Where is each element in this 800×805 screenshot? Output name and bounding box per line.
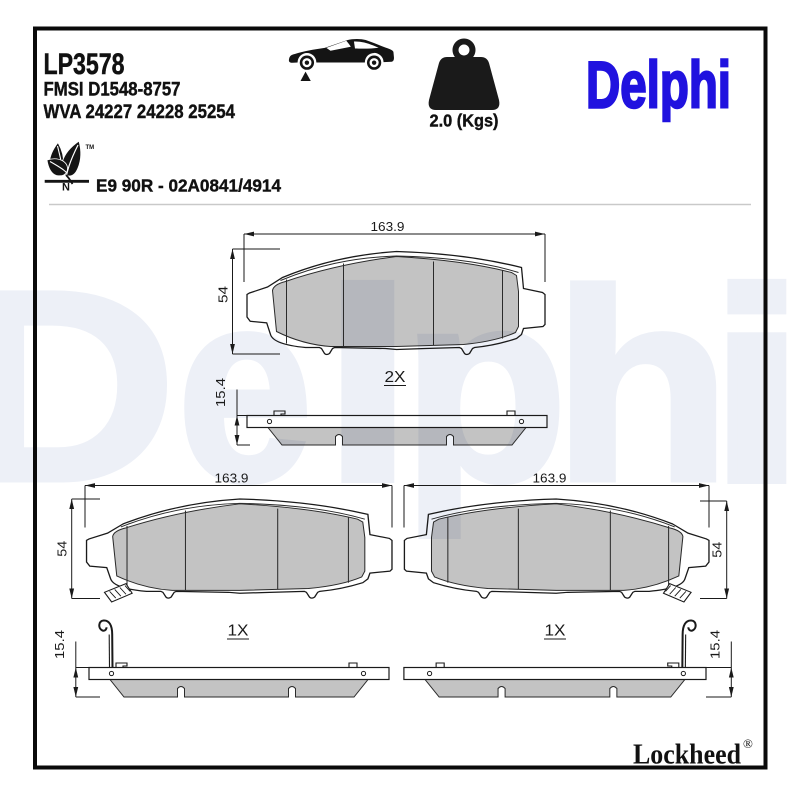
svg-text:15.4: 15.4	[707, 630, 722, 659]
svg-text:FMSI D1548-8757: FMSI D1548-8757	[44, 80, 181, 101]
svg-text:LP3578: LP3578	[44, 48, 125, 81]
svg-text:163.9: 163.9	[533, 471, 567, 486]
svg-text:163.9: 163.9	[371, 219, 405, 234]
svg-text:163.9: 163.9	[215, 471, 249, 486]
svg-text:E9 90R - 02A0841/4914: E9 90R - 02A0841/4914	[96, 176, 281, 196]
svg-text:N: N	[62, 182, 70, 194]
svg-text:h: h	[552, 234, 731, 538]
svg-text:TM: TM	[86, 145, 95, 151]
svg-text:2.0 (Kgs): 2.0 (Kgs)	[430, 111, 499, 131]
svg-text:®: ®	[743, 736, 753, 751]
svg-text:i: i	[708, 233, 800, 537]
svg-text:2X: 2X	[385, 369, 407, 386]
svg-text:WVA 24227 24228 25254: WVA 24227 24228 25254	[44, 102, 236, 123]
svg-text:D: D	[0, 235, 177, 538]
svg-text:15.4: 15.4	[52, 630, 67, 659]
svg-text:1X: 1X	[228, 623, 250, 640]
svg-text:1X: 1X	[545, 623, 567, 640]
svg-text:54: 54	[55, 541, 70, 557]
svg-text:Lockheed: Lockheed	[633, 739, 741, 771]
svg-text:Delphi: Delphi	[586, 48, 731, 122]
svg-text:54: 54	[710, 542, 725, 558]
svg-text:54: 54	[216, 286, 231, 303]
svg-text:15.4: 15.4	[213, 378, 228, 407]
